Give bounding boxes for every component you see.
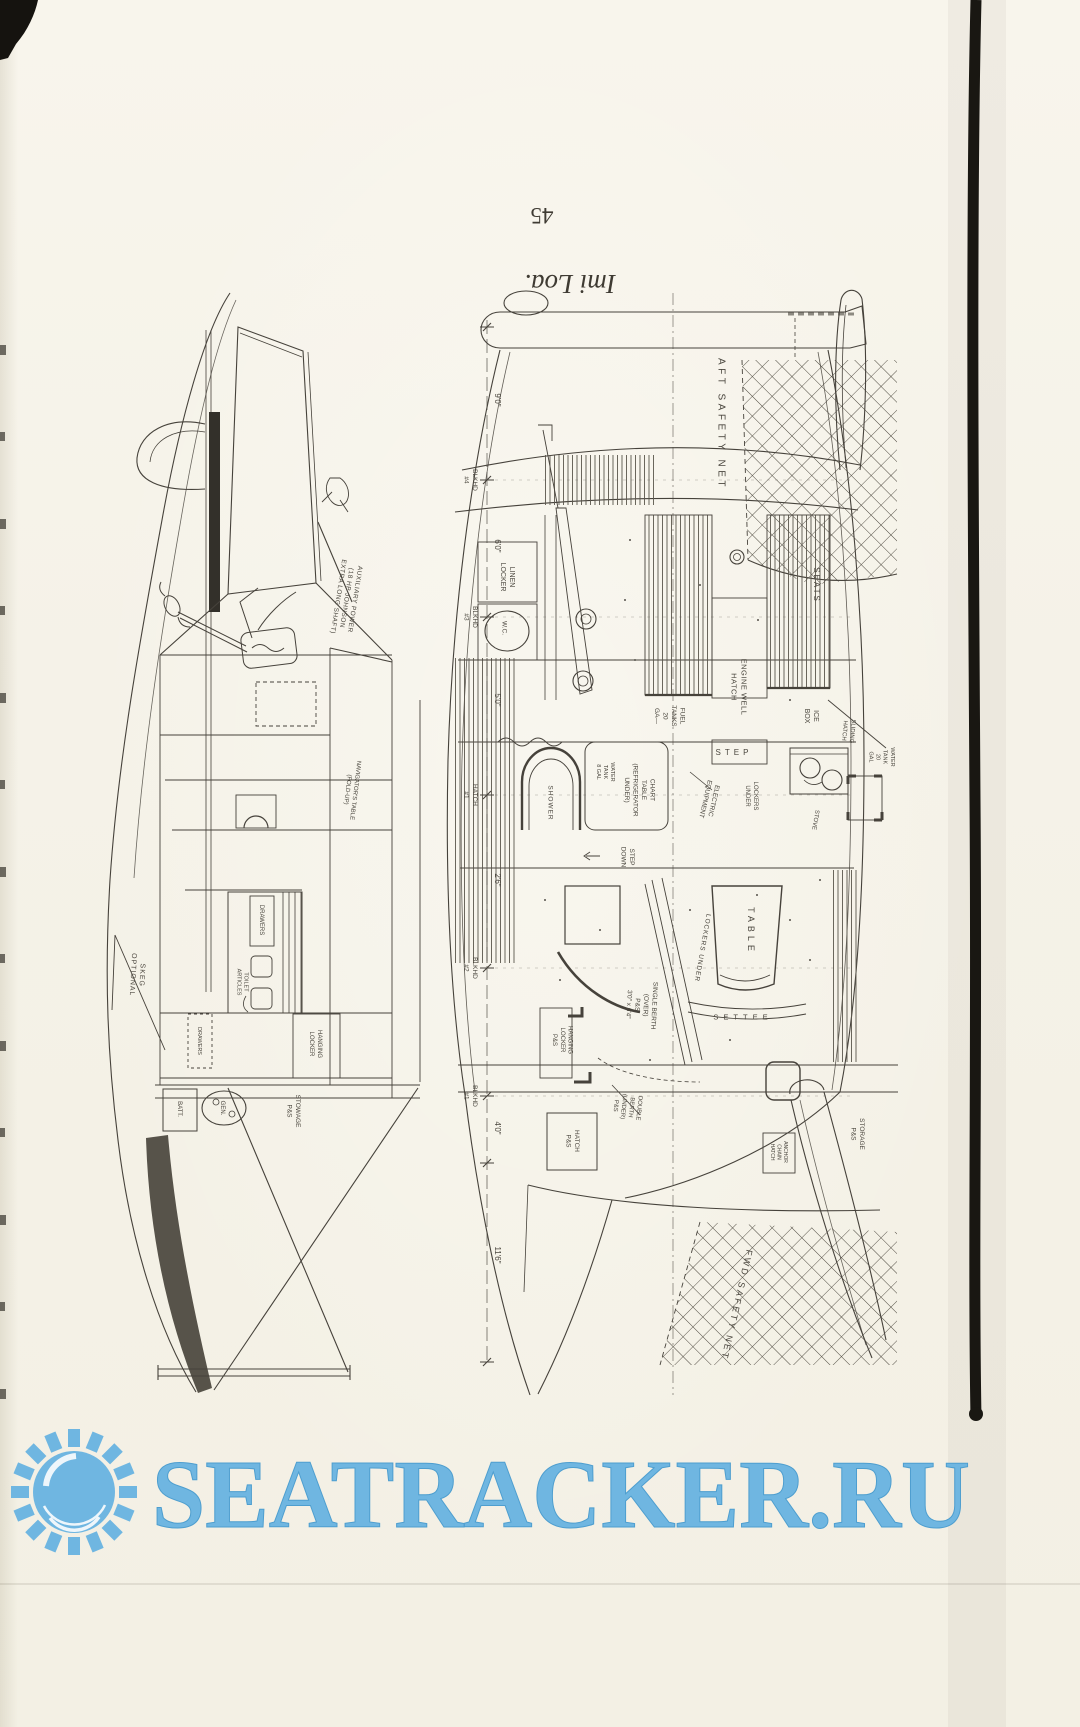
plan-label: DOUBLEBERTH(UNDER)P&S	[611, 1093, 643, 1121]
plan-label: FUELTANKS20GA—	[653, 705, 685, 727]
sun-icon	[11, 1429, 137, 1555]
profile-view	[107, 293, 420, 1393]
scanned-page: 45 Imi Loa.	[0, 0, 1080, 1727]
profile-rudder	[137, 422, 205, 490]
plan-label: SLIDINGHATCH	[840, 718, 856, 743]
scan-edge-line	[973, 0, 976, 1418]
plan-label: HANGINGLOCKERP&S	[551, 1026, 573, 1054]
plan-label: ELECTRICEQUIPMENT	[697, 779, 721, 820]
plan-label: CHARTTABLE(REFRIGERATORUNDER)	[623, 763, 655, 817]
scan-corner-blob	[0, 0, 38, 60]
plan-label: STEPDOWN	[620, 847, 635, 868]
dimension-label: 2'6"	[493, 873, 502, 886]
profile-label: SKEGOPTIONAL	[128, 953, 146, 997]
station-label: BLKHD#1	[463, 1085, 478, 1107]
plan-label: LOCKERS UNDER	[693, 913, 712, 982]
plan-label: STORAGEP&S	[850, 1118, 865, 1150]
page-caption: Imi Loa.	[524, 269, 617, 299]
plan-label: SINGLE BERTH(OVER)P&S3'0" x 6'4"	[624, 980, 659, 1029]
watermark: SEATRACKER.RU	[11, 1429, 970, 1555]
watermark-text: SEATRACKER.RU	[152, 1441, 970, 1548]
plan-label: STOVE	[810, 809, 819, 830]
dimension-label: 6'0"	[493, 539, 502, 552]
plan-label: WATERTANK8 GAL	[595, 762, 615, 781]
fwd-safety-net	[660, 1222, 897, 1365]
plan-label: LOCKERSUNDER	[744, 782, 758, 811]
station-label: BLKHD#4	[463, 469, 478, 491]
plan-label: ANCHORCHAINHATCH	[769, 1141, 788, 1163]
profile-label: NAVIGATOR'S TABLE(FOLD-UP)	[340, 759, 361, 820]
plan-label: SEATS	[812, 567, 821, 603]
profile-skeg	[112, 935, 165, 1050]
profile-label: BATT.	[176, 1101, 182, 1117]
scan-left-marks	[0, 345, 6, 1399]
plan-label: LINENLOCKER	[499, 563, 515, 592]
dimension-label: 11'6"	[493, 1246, 502, 1263]
station-label: BLKHD#3	[463, 606, 478, 628]
plan-label: SHOWER	[547, 785, 554, 820]
profile-bow-shade	[146, 1135, 212, 1393]
profile-outboard-motor	[160, 582, 298, 669]
profile-label: TOILETARTICLES	[236, 969, 249, 996]
plan-aft-beam	[481, 291, 866, 360]
tiller	[556, 508, 592, 694]
dimension-label: 9'0"	[493, 393, 502, 406]
plan-slats	[455, 455, 858, 1062]
plan-label: SETTEE	[713, 1013, 772, 1022]
profile-label: GEN.	[219, 1101, 225, 1116]
profile-label: HANGINGLOCKER	[308, 1030, 322, 1058]
profile-label: AUXILIARY POWER(18 HP JOHNSONEXTRA LONG …	[329, 559, 364, 637]
plan-label: WATERTANK20GAL	[867, 747, 894, 766]
plan-label: AFT SAFETY NET	[716, 358, 727, 490]
profile-label: STOWAGEP&S	[286, 1095, 301, 1129]
plan-label: HATCHP&S	[565, 1130, 580, 1152]
dimension-label: 4'0"	[493, 1121, 502, 1134]
plan-label: TABLE	[746, 907, 756, 955]
plan-label: W.C.	[501, 621, 508, 635]
plan-label: STEP	[716, 748, 753, 757]
plan-label: ICEBOX	[803, 709, 819, 724]
page-number: 45	[531, 203, 554, 228]
dimension-label: 5'0"	[493, 693, 502, 706]
plan-label: ENGINE WELLHATCH	[730, 659, 749, 716]
plan-view	[447, 290, 898, 1395]
profile-label: DRAWERS	[258, 905, 264, 935]
profile-label: DRAWERS	[196, 1027, 202, 1055]
